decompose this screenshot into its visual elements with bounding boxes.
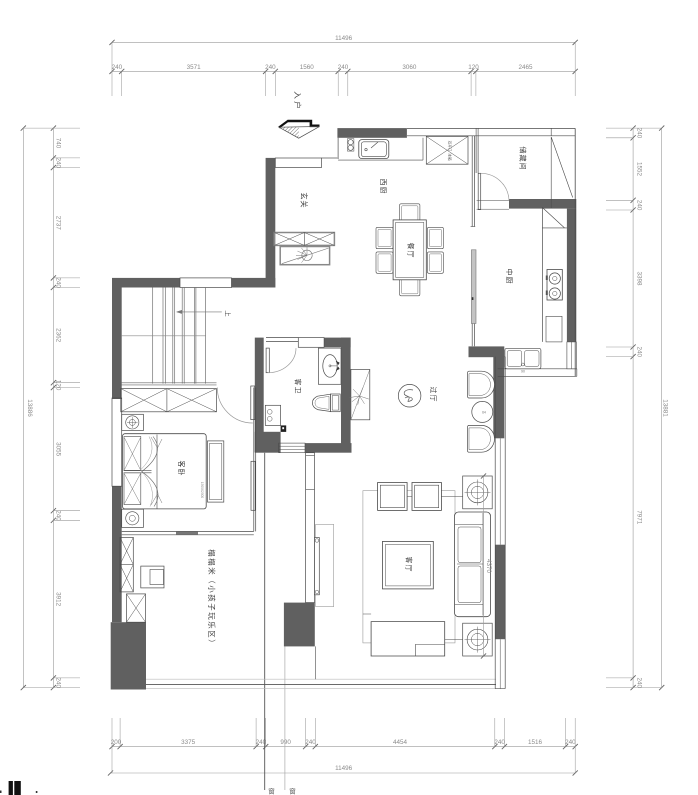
svg-text:厅: 厅 [429,395,437,402]
svg-text:3912: 3912 [55,592,62,607]
svg-text:740: 740 [55,138,62,149]
svg-text:1500X2000: 1500X2000 [200,482,204,499]
svg-text:储: 储 [519,147,528,154]
svg-text:榻: 榻 [207,558,216,565]
svg-text:13886: 13886 [26,399,33,417]
svg-text:990: 990 [280,739,291,746]
svg-text:区: 区 [207,630,216,638]
svg-text:米: 米 [207,567,216,575]
svg-text:240: 240 [636,128,643,139]
svg-text:入: 入 [293,91,302,99]
svg-text:240: 240 [494,739,505,746]
svg-text:藏: 藏 [519,155,528,162]
svg-text:240: 240 [305,739,316,746]
svg-text:中: 中 [505,269,514,276]
svg-text:上: 上 [224,310,233,317]
svg-text:孩: 孩 [207,594,216,602]
svg-text:客: 客 [294,379,303,386]
svg-text:3398: 3398 [636,271,643,286]
svg-text:11496: 11496 [335,35,353,42]
svg-text:240: 240 [55,510,62,521]
svg-text:64: 64 [482,411,486,415]
svg-text:4454: 4454 [393,739,408,746]
svg-text:240: 240 [636,678,643,689]
svg-text:3375: 3375 [181,739,196,746]
svg-text:厅: 厅 [407,251,415,258]
svg-text:厨: 厨 [505,277,513,284]
svg-text:卧: 卧 [177,469,185,476]
svg-text:1552: 1552 [636,162,643,177]
svg-text:200: 200 [111,739,122,746]
svg-text:窗: 窗 [289,787,296,795]
svg-text:3055: 3055 [55,442,62,457]
svg-text:240: 240 [338,64,349,71]
svg-text:榻: 榻 [207,549,216,556]
svg-text:240: 240 [55,158,62,169]
svg-text:窗: 窗 [268,787,275,795]
svg-text:玩: 玩 [207,612,216,620]
svg-text:小: 小 [207,585,216,593]
svg-text:客: 客 [177,461,186,468]
svg-text:（: （ [207,576,216,584]
svg-text:厨: 厨 [379,187,387,194]
svg-text:间: 间 [519,163,527,170]
svg-text:关: 关 [300,200,309,207]
svg-text:冰箱: 冰箱 [448,153,453,161]
svg-text:240: 240 [55,277,62,288]
svg-text:1516: 1516 [528,739,543,746]
svg-text:1560: 1560 [300,64,315,71]
svg-text:240: 240 [565,739,576,746]
svg-text:双开门: 双开门 [448,141,453,152]
svg-text:2362: 2362 [55,328,62,343]
svg-text:120: 120 [55,380,62,391]
svg-text:90: 90 [521,370,525,374]
svg-text:240: 240 [636,200,643,211]
svg-text:过: 过 [429,387,438,394]
svg-text:240: 240 [55,678,62,689]
svg-text:厅: 厅 [405,565,413,572]
svg-text:2737: 2737 [55,216,62,231]
svg-text:120: 120 [468,64,479,71]
svg-text:240: 240 [636,347,643,358]
svg-text:）: ） [207,639,216,646]
svg-text:玄: 玄 [300,192,309,199]
svg-text:客: 客 [405,557,414,564]
svg-text:11496: 11496 [335,765,353,772]
svg-text:7971: 7971 [636,510,643,525]
svg-text:13881: 13881 [662,399,669,417]
svg-text:2465: 2465 [518,64,533,71]
svg-text:240: 240 [265,64,276,71]
svg-text:户: 户 [293,101,303,109]
svg-text:餐: 餐 [407,243,416,250]
svg-text:子: 子 [207,603,216,611]
svg-text:4370: 4370 [485,559,492,574]
svg-text:卫: 卫 [294,387,302,394]
svg-text:240: 240 [112,64,123,71]
svg-text:3571: 3571 [187,64,202,71]
svg-text:3060: 3060 [402,64,417,71]
svg-text:西: 西 [379,179,387,186]
svg-text:乐: 乐 [207,621,216,629]
